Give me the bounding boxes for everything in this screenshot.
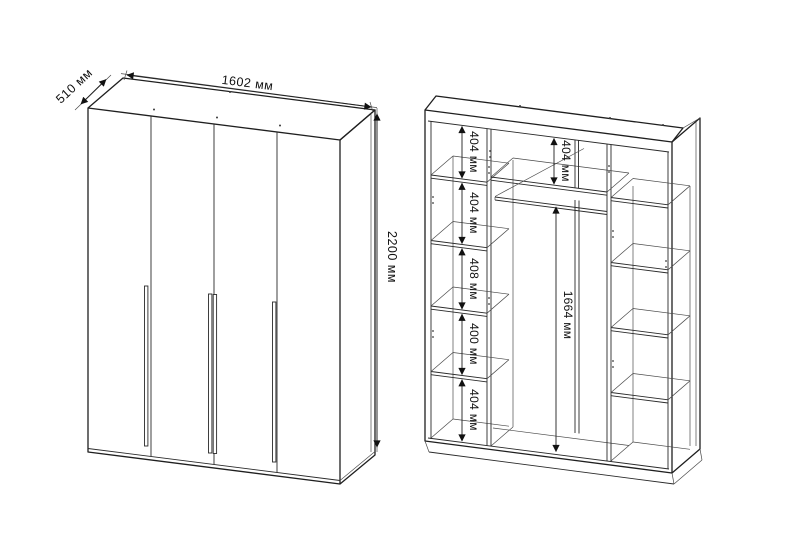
interior-shelf — [611, 374, 690, 404]
cabinet-outline — [88, 78, 375, 484]
hanging-height-label: 1664 мм — [561, 291, 575, 340]
interior-shelf — [611, 179, 690, 209]
front-view: 510 мм 1602 мм 2200 мм — [53, 66, 399, 484]
side-face — [340, 110, 375, 484]
hanging-rod — [495, 197, 607, 215]
wardrobe-drawing-canvas: 510 мм 1602 мм 2200 мм — [0, 0, 800, 533]
shelf-section-dimensions: 404 мм 404 мм 408 мм 400 мм 404 мм — [462, 127, 481, 442]
hanging-height-dimension: 1664 мм — [556, 207, 575, 452]
interior-view: 404 мм 404 мм 408 мм 400 мм 404 мм 404 м… — [425, 96, 702, 484]
shelf-section-label-4: 404 мм — [467, 389, 481, 431]
shelf-section-label-3: 400 мм — [467, 323, 481, 365]
middle-top-dimension: 404 мм — [554, 139, 573, 185]
drill-dots — [153, 91, 281, 127]
right-column-shelves — [611, 179, 690, 404]
middle-top-dimension-label: 404 мм — [559, 140, 573, 182]
interior-top-face — [425, 96, 683, 142]
shelf-section-label-2: 408 мм — [467, 258, 481, 300]
middle-section — [491, 140, 629, 434]
height-dimension: 2200 мм — [377, 108, 399, 452]
door-handle — [209, 294, 212, 453]
interior-shelf — [611, 244, 690, 274]
depth-dimension-label: 510 мм — [53, 66, 95, 107]
shelf-section-label-1: 404 мм — [467, 192, 481, 234]
door-handle — [213, 295, 216, 454]
door-handle — [145, 286, 148, 446]
interior-shelf — [611, 309, 690, 339]
door-handles — [145, 286, 276, 462]
depth-dimension: 510 мм — [53, 66, 111, 110]
door-handle — [273, 302, 276, 462]
height-dimension-label: 2200 мм — [385, 231, 399, 283]
technical-drawing: 510 мм 1602 мм 2200 мм — [0, 0, 800, 533]
top-divider — [575, 140, 579, 188]
shelf-section-label-0: 404 мм — [467, 131, 481, 173]
